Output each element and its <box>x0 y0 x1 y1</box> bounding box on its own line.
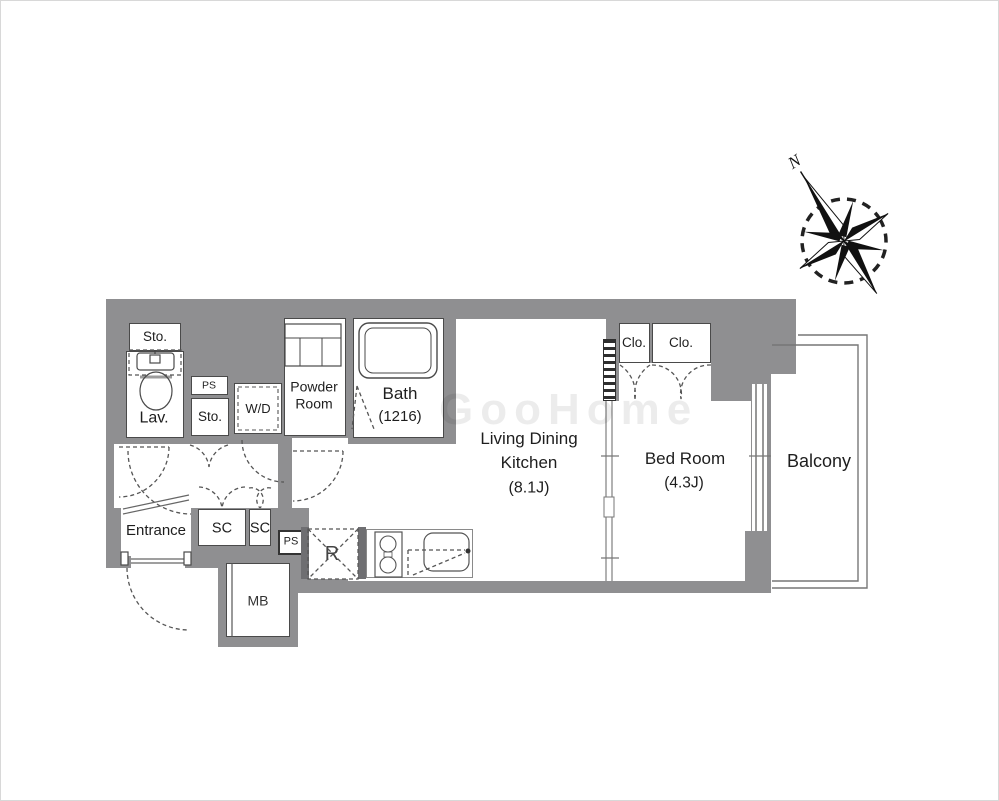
wall-stub-bedroom-se <box>745 531 771 581</box>
wall-stub-fridge-right <box>358 527 366 579</box>
floorplan-page: N GooHome Sto. Lav. PS Sto. W/D Powder R… <box>0 0 999 801</box>
label-pipe-space-upper: PS <box>202 380 216 393</box>
label-bath: Bath <box>383 384 418 404</box>
glass-hatch-strip <box>603 339 616 401</box>
closet-door-zone <box>619 363 711 401</box>
label-lavatory: Lav. <box>139 408 168 427</box>
label-powder-1: Powder <box>290 379 337 396</box>
label-powder-2: Room <box>295 396 332 413</box>
label-pipe-space-lower: PS <box>284 535 299 548</box>
compass-north-label: N <box>784 150 806 174</box>
label-ldk-size: (8.1J) <box>509 478 550 497</box>
wall-stub-fridge-left <box>301 527 309 579</box>
label-entrance: Entrance <box>126 522 186 540</box>
label-bedroom: Bed Room <box>645 449 725 469</box>
label-ldk-2: Kitchen <box>501 453 558 473</box>
entrance-threshold <box>131 554 185 568</box>
room-ldk-main <box>456 319 606 581</box>
label-bath-size: (1216) <box>378 408 421 426</box>
label-shoe-closet-left: SC <box>212 520 232 537</box>
wall-stub-ldk-door <box>280 436 292 456</box>
bedroom-window <box>752 384 767 531</box>
label-storage-mid: Sto. <box>198 409 222 425</box>
room-powder <box>284 318 346 436</box>
label-refrigerator: R <box>325 542 339 566</box>
label-balcony: Balcony <box>787 451 851 473</box>
room-ldk-doorway <box>292 438 348 508</box>
label-closet-left: Clo. <box>622 335 646 351</box>
wall-top-right-block <box>771 299 796 374</box>
label-shoe-closet-right: SC <box>250 520 270 537</box>
label-storage-top: Sto. <box>143 329 167 345</box>
label-bedroom-size: (4.3J) <box>664 475 704 494</box>
label-washer-dryer: W/D <box>245 401 270 417</box>
label-meter-box: MB <box>248 593 269 610</box>
kitchen-counter <box>366 529 473 578</box>
label-ldk-1: Living Dining <box>480 429 577 449</box>
compass-rose-icon: N <box>745 126 921 321</box>
label-closet-right: Clo. <box>669 335 693 351</box>
